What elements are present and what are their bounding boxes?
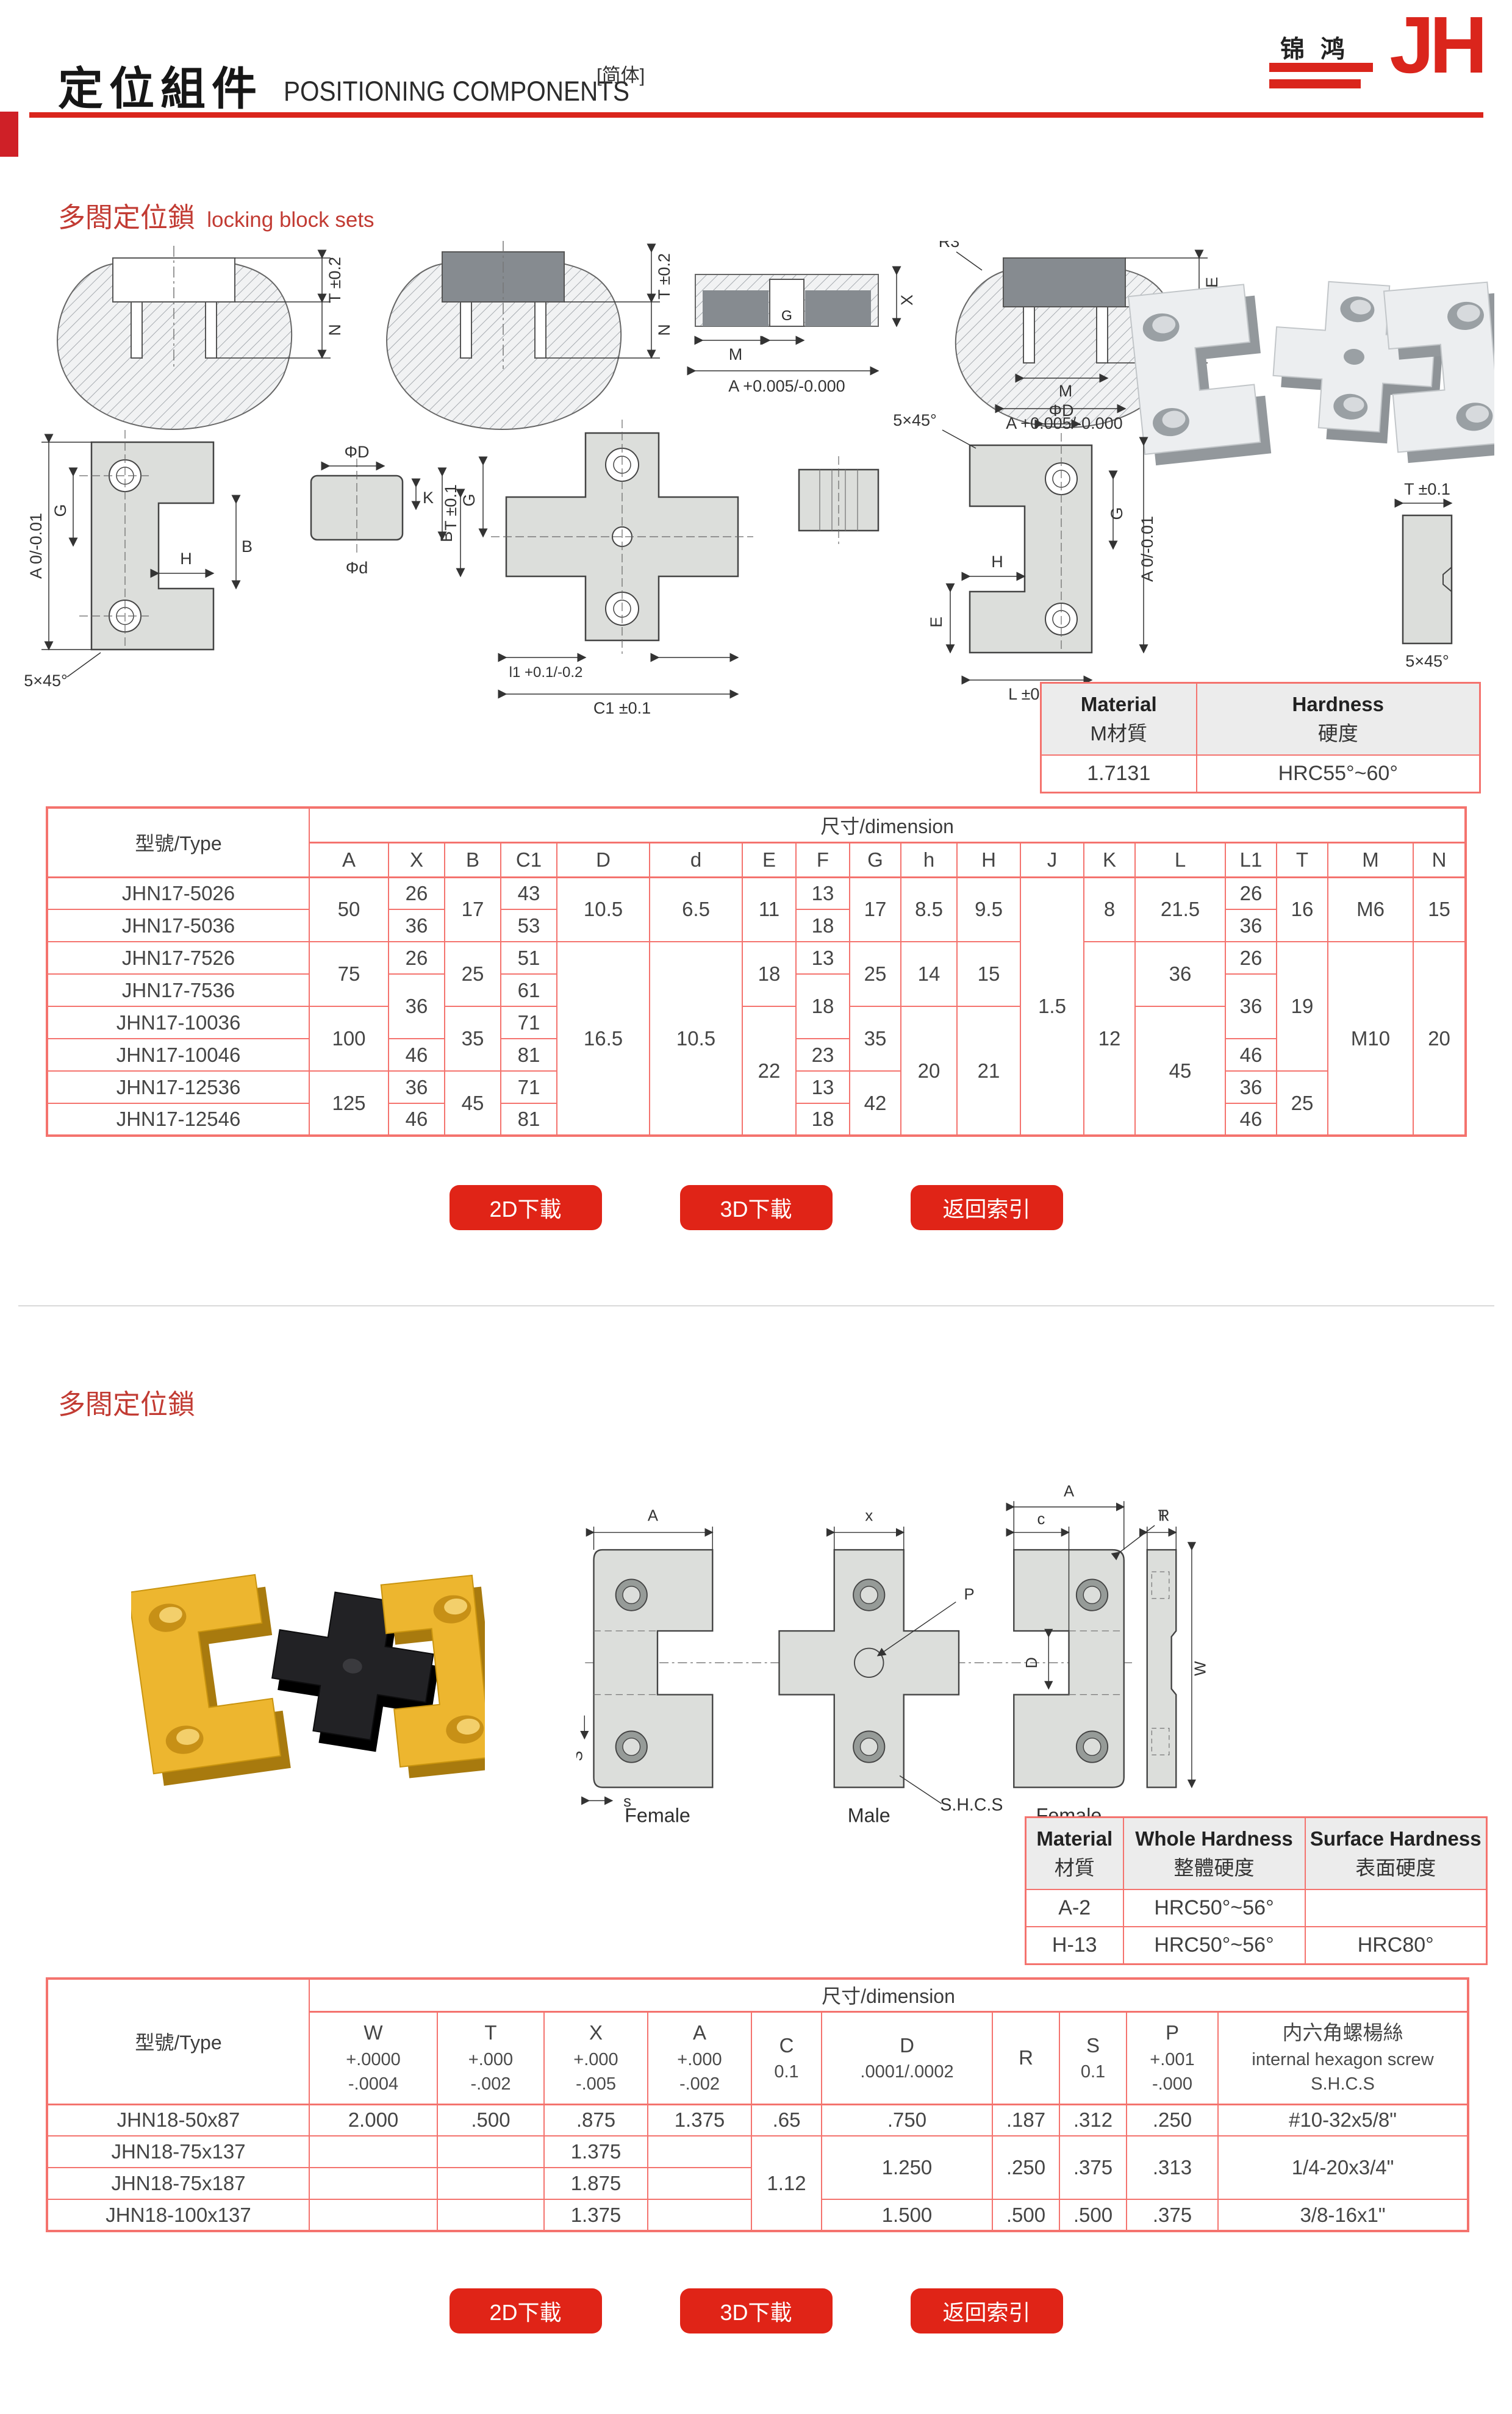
material-cell: HRC80°	[1305, 1927, 1487, 1965]
download-2d-button[interactable]: 2D下載	[450, 2288, 602, 2333]
column-header: 内六角螺楊絲internal hexagon screwS.H.C.S	[1218, 2011, 1468, 2104]
dimension-cell: 125	[309, 1071, 389, 1136]
dimension-cell: 36	[1225, 1071, 1277, 1103]
dim-label-phiD: ΦD	[1048, 401, 1073, 420]
dimension-cell: 18	[796, 1103, 850, 1136]
dim-label-B: B	[242, 537, 253, 556]
dimension-cell	[309, 2168, 437, 2199]
dimension-cell: 13	[796, 1071, 850, 1103]
dimension-cell: .250	[992, 2136, 1059, 2199]
section1-title-en: locking block sets	[207, 208, 374, 232]
logo-jh-mark: JH	[1389, 0, 1483, 91]
type-cell: JHN18-50x87	[47, 2104, 309, 2136]
dimension-cell: 9.5	[957, 877, 1020, 942]
dim-label-G: G	[51, 504, 70, 517]
material-column-header: Material材質	[1026, 1818, 1123, 1889]
catalog-page: 定位組件 POSITIONING COMPONENTS [简体] 锦鸿 JH 多…	[0, 0, 1512, 2414]
section2-title-zh: 多閤定位鎖	[58, 1389, 195, 1420]
table-row: JHN18-75x1371.3751.121.250.250.375.3131/…	[47, 2136, 1468, 2168]
dimension-cell: 36	[389, 909, 445, 942]
type-column-header: 型號/Type	[47, 808, 309, 877]
dimension-cell: 71	[501, 1006, 557, 1039]
dim-label-T: T ±0.2	[655, 253, 673, 299]
dimension-cell: 17	[445, 877, 501, 942]
dimension-cell: .500	[1059, 2199, 1127, 2231]
dimension-cell: 26	[389, 942, 445, 974]
table-row: JHN17-50265026174310.56.51113178.59.51.5…	[47, 877, 1466, 909]
dimension-table: 型號/Type尺寸/dimensionW+.0000-.0004T+.000-.…	[46, 1977, 1469, 2232]
dimension-cell	[309, 2136, 437, 2168]
section-divider	[18, 1305, 1494, 1306]
section2-technical-drawing: A S s x P S.H.C.S	[576, 1479, 1214, 1830]
column-header: L1	[1225, 842, 1277, 877]
dimension-cell: 25	[445, 942, 501, 1006]
dimension-span-header: 尺寸/dimension	[309, 1979, 1468, 2011]
material-cell: H-13	[1026, 1927, 1123, 1965]
red-corner-block	[0, 112, 18, 157]
dimension-cell	[309, 2199, 437, 2231]
dimension-cell: 1.5	[1020, 877, 1084, 1136]
dimension-cell: 25	[1277, 1071, 1328, 1136]
dim-label-N: N	[326, 324, 344, 336]
dimension-cell: 15	[1413, 877, 1466, 942]
plan-view-right-block: ΦD G A 0/-0.01 H E L ±0.1 5×45°	[893, 401, 1156, 703]
dimension-cell: 46	[389, 1103, 445, 1136]
dimension-cell: 51	[501, 942, 557, 974]
dimension-cell: 1.500	[822, 2199, 992, 2231]
dimension-cell: 1.375	[544, 2199, 648, 2231]
dim-label-M: M	[1059, 382, 1073, 400]
dim-label-S: S	[576, 1751, 586, 1761]
material-table: Material材質Whole Hardness整體硬度Surface Hard…	[1025, 1816, 1488, 1965]
dim-label-W: W	[1192, 1661, 1209, 1676]
back-to-index-button[interactable]: 返回索引	[911, 2288, 1063, 2333]
logo-stripe	[1269, 63, 1373, 72]
dim-label-A01: A 0/-0.01	[27, 513, 45, 579]
dim-label-x: x	[865, 1508, 873, 1525]
dimension-cell: 42	[850, 1071, 901, 1136]
dimension-cell: 1.375	[544, 2136, 648, 2168]
dimension-cell: 3/8-16x1"	[1218, 2199, 1468, 2231]
table-row: A-2HRC50°~56°	[1026, 1889, 1487, 1927]
dimension-cell: .375	[1059, 2136, 1127, 2199]
dimension-cell	[437, 2136, 544, 2168]
side-section-small: T ±0.1 5×45°	[1403, 480, 1452, 670]
material-cell: HRC50°~56°	[1123, 1889, 1305, 1927]
dimension-cell: .65	[751, 2104, 822, 2136]
dimension-cell: 2.000	[309, 2104, 437, 2136]
material-column-header: Whole Hardness整體硬度	[1123, 1818, 1305, 1889]
dim-label-H: H	[180, 550, 192, 568]
dim-label-phiD: ΦD	[344, 443, 369, 461]
dim-label-G: G	[781, 307, 792, 323]
dimension-cell: 17	[850, 877, 901, 942]
section2-title: 多閤定位鎖	[58, 1382, 195, 1422]
dimension-cell: #10-32x5/8"	[1218, 2104, 1468, 2136]
dimension-cell: 22	[742, 1006, 796, 1136]
male-cross: x P S.H.C.S	[779, 1508, 1003, 1815]
dim-label-P: P	[964, 1586, 975, 1603]
dim-label-R3: R3	[939, 241, 960, 251]
plan-view-cross-block: G B l1 +0.1/-0.2 C1 ±0.1	[437, 420, 753, 717]
logo-chinese-text: 锦鸿	[1280, 29, 1361, 65]
dim-label-C1: C1 ±0.1	[593, 699, 651, 717]
dimension-cell: 14	[901, 942, 957, 1006]
type-cell: JHN17-12546	[47, 1103, 309, 1136]
material-table: MaterialM材質Hardness硬度1.7131HRC55°~60°	[1040, 682, 1481, 793]
dimension-cell: 35	[445, 1006, 501, 1071]
dimension-cell: 8.5	[901, 877, 957, 942]
dimension-cell: 13	[796, 942, 850, 974]
dimension-cell	[648, 2199, 751, 2231]
product-photo-locking-blocks	[131, 1549, 485, 1805]
female-plate-left: A S s	[576, 1508, 712, 1810]
dimension-cell: .750	[822, 2104, 992, 2136]
material-cell: HRC50°~56°	[1123, 1927, 1305, 1965]
dimension-cell: .312	[1059, 2104, 1127, 2136]
column-header: H	[957, 842, 1020, 877]
dimension-cell: 10.5	[557, 877, 650, 942]
dim-label-c: c	[1037, 1511, 1045, 1528]
material-cell: HRC55°~60°	[1197, 755, 1480, 793]
female-plate-right: A c R D	[1014, 1483, 1169, 1788]
dimension-cell: 36	[1225, 909, 1277, 942]
table-row: 1.7131HRC55°~60°	[1041, 755, 1480, 793]
dimension-cell: 36	[389, 1071, 445, 1103]
dimension-cell: 20	[1413, 942, 1466, 1136]
dim-label-chamfer: 5×45°	[1405, 652, 1449, 670]
column-header: R	[992, 2011, 1059, 2104]
section1-buttons: 2D下載 3D下載 返回索引	[0, 1185, 1512, 1230]
dimension-table-2: 型號/Type尺寸/dimensionW+.0000-.0004T+.000-.…	[46, 1977, 1469, 2232]
dimension-cell: .875	[544, 2104, 648, 2136]
section1-title: 多閤定位鎖 locking block sets	[58, 195, 374, 235]
dim-label-B: B	[437, 531, 456, 542]
dim-label-H: H	[991, 553, 1003, 571]
dim-label-T01: T ±0.1	[1404, 480, 1450, 498]
page-title: 定位組件	[58, 52, 263, 118]
plan-view-threaded-part	[799, 456, 878, 544]
dimension-cell: 81	[501, 1039, 557, 1071]
section-view-3: X M G A +0.005/-0.000	[695, 274, 916, 395]
dimension-cell: 100	[309, 1006, 389, 1071]
section1-title-zh: 多閤定位鎖	[58, 202, 195, 233]
dimension-cell: .500	[437, 2104, 544, 2136]
caption-male: Male	[848, 1805, 890, 1827]
dimension-cell: 25	[850, 942, 901, 1006]
column-header: X+.000-.005	[544, 2011, 648, 2104]
dimension-cell	[648, 2136, 751, 2168]
dimension-cell: 18	[796, 974, 850, 1039]
table-row: JHN18-50x872.000.500.8751.375.65.750.187…	[47, 2104, 1468, 2136]
material-table-2: Material材質Whole Hardness整體硬度Surface Hard…	[1025, 1816, 1488, 1965]
dimension-table: 型號/Type尺寸/dimensionAXBC1DdEFGhHJKLL1TMNJ…	[46, 806, 1467, 1137]
dimension-cell	[648, 2168, 751, 2199]
type-cell: JHN18-100x137	[47, 2199, 309, 2231]
table-row: H-13HRC50°~56°HRC80°	[1026, 1927, 1487, 1965]
section-view-2: T ±0.2 N	[387, 241, 673, 429]
dimension-cell: 16.5	[557, 942, 650, 1136]
dimension-cell: 45	[445, 1071, 501, 1136]
type-cell: JHN17-5026	[47, 877, 309, 909]
dimension-cell: 35	[850, 1006, 901, 1071]
dim-label-chamfer: 5×45°	[24, 672, 68, 690]
dimension-cell: 13	[796, 877, 850, 909]
dim-label-E: E	[1203, 277, 1221, 288]
plan-view-pin: ΦD Φd K T ±0.1	[311, 443, 460, 577]
type-cell: JHN17-10036	[47, 1006, 309, 1039]
column-header: L	[1135, 842, 1225, 877]
column-header: T	[1277, 842, 1328, 877]
dim-label-l1: l1 +0.1/-0.2	[509, 664, 583, 681]
column-header: N	[1413, 842, 1466, 877]
dim-label-T: T ±0.2	[326, 257, 344, 303]
dimension-cell: 43	[501, 877, 557, 909]
dimension-cell: 53	[501, 909, 557, 942]
download-2d-button[interactable]: 2D下載	[450, 1185, 602, 1230]
section2-buttons: 2D下載 3D下載 返回索引	[0, 2288, 1512, 2333]
dimension-cell: 16	[1277, 877, 1328, 942]
material-column-header: Surface Hardness表面硬度	[1305, 1818, 1487, 1889]
dimension-span-header: 尺寸/dimension	[309, 808, 1466, 842]
dimension-cell: 1/4-20x3/4"	[1218, 2136, 1468, 2199]
dimension-cell: 81	[501, 1103, 557, 1136]
section1-technical-drawing: T ±0.2 N T ±0.2 N X M	[18, 241, 1494, 717]
dim-label-chamfer: 5×45°	[893, 411, 937, 429]
material-table-1: MaterialM材質Hardness硬度1.7131HRC55°~60°	[1040, 682, 1481, 793]
column-header: X	[389, 842, 445, 877]
dimension-cell: 18	[796, 909, 850, 942]
dimension-cell: 26	[1225, 942, 1277, 974]
dimension-cell: 1.375	[648, 2104, 751, 2136]
dim-label-G: G	[460, 493, 478, 506]
column-header: F	[796, 842, 850, 877]
dimension-cell: 11	[742, 877, 796, 942]
type-cell: JHN17-7536	[47, 974, 309, 1006]
column-header: P+.001-.000	[1127, 2011, 1218, 2104]
material-cell	[1305, 1889, 1487, 1927]
dimension-cell: 46	[389, 1039, 445, 1071]
dimension-cell: 26	[1225, 877, 1277, 909]
dimension-cell: 15	[957, 942, 1020, 1006]
download-3d-button[interactable]: 3D下載	[680, 1185, 833, 1230]
caption-female-left: Female	[625, 1805, 690, 1827]
dimension-cell: 1.875	[544, 2168, 648, 2199]
dimension-cell: .250	[1127, 2104, 1218, 2136]
column-header: J	[1020, 842, 1084, 877]
language-tag[interactable]: [简体]	[597, 60, 645, 87]
dimension-cell: 19	[1277, 942, 1328, 1071]
column-header: B	[445, 842, 501, 877]
dim-label-T01: T ±0.1	[442, 484, 460, 531]
product-photo-steel-blocks	[1128, 278, 1494, 467]
type-cell: JHN17-12536	[47, 1071, 309, 1103]
dimension-cell: 21	[957, 1006, 1020, 1136]
dimension-table-1: 型號/Type尺寸/dimensionAXBC1DdEFGhHJKLL1TMNJ…	[46, 806, 1467, 1137]
dimension-cell: 71	[501, 1071, 557, 1103]
dimension-cell: 12	[1084, 942, 1135, 1136]
column-header: W+.0000-.0004	[309, 2011, 437, 2104]
dimension-cell: 50	[309, 877, 389, 942]
column-header: G	[850, 842, 901, 877]
dim-label-D: D	[1023, 1657, 1041, 1669]
dimension-cell: 1.12	[751, 2136, 822, 2231]
column-header: d	[650, 842, 742, 877]
dimension-cell: M6	[1328, 877, 1413, 942]
column-header: C1	[501, 842, 557, 877]
dimension-cell: 6.5	[650, 877, 742, 942]
dimension-cell: 45	[1135, 1006, 1225, 1136]
section-view-1: T ±0.2 N	[57, 246, 344, 429]
column-header: M	[1328, 842, 1413, 877]
dimension-cell: .313	[1127, 2136, 1218, 2199]
dim-label-A-tol: A +0.005/-0.000	[728, 377, 845, 395]
column-header: A+.000-.002	[648, 2011, 751, 2104]
dimension-cell: .500	[992, 2199, 1059, 2231]
dim-label-M: M	[729, 345, 743, 364]
material-column-header: Hardness硬度	[1197, 683, 1480, 755]
page-subtitle: POSITIONING COMPONENTS	[284, 76, 629, 107]
column-header: D.0001/.0002	[822, 2011, 992, 2104]
dimension-cell: .375	[1127, 2199, 1218, 2231]
column-header: K	[1084, 842, 1135, 877]
table-row: JHN17-75267526255116.510.518132514151236…	[47, 942, 1466, 974]
dim-label-phid: Φd	[346, 559, 368, 577]
material-column-header: MaterialM材質	[1041, 683, 1197, 755]
column-header: C0.1	[751, 2011, 822, 2104]
side-view-plate: T W	[1147, 1508, 1209, 1788]
dim-label-G: G	[1108, 507, 1126, 520]
dimension-cell: 75	[309, 942, 389, 1006]
column-header: D	[557, 842, 650, 877]
dimension-cell: 36	[1135, 942, 1225, 1006]
label-shcs: S.H.C.S	[940, 1796, 1003, 1815]
header-rule	[29, 112, 1483, 118]
dimension-cell: .187	[992, 2104, 1059, 2136]
download-3d-button[interactable]: 3D下載	[680, 2288, 833, 2333]
material-cell: 1.7131	[1041, 755, 1197, 793]
dimension-cell: 61	[501, 974, 557, 1006]
type-cell: JHN18-75x187	[47, 2168, 309, 2199]
dim-label-A: A	[1064, 1483, 1075, 1500]
back-to-index-button[interactable]: 返回索引	[911, 1185, 1063, 1230]
dim-label-T: T	[1158, 1508, 1168, 1525]
dimension-cell: 46	[1225, 1039, 1277, 1071]
dimension-cell: 21.5	[1135, 877, 1225, 942]
dim-label-K: K	[423, 489, 434, 507]
column-header: E	[742, 842, 796, 877]
plan-view-left-block: A 0/-0.01 G H B 5×45°	[24, 430, 253, 690]
dimension-cell: 46	[1225, 1103, 1277, 1136]
company-logo: 锦鸿 JH	[1269, 16, 1483, 107]
dimension-cell: 1.250	[822, 2136, 992, 2199]
dimension-cell: 20	[901, 1006, 957, 1136]
logo-stripe	[1269, 79, 1361, 88]
type-cell: JHN18-75x137	[47, 2136, 309, 2168]
type-cell: JHN17-10046	[47, 1039, 309, 1071]
dimension-cell: 18	[742, 942, 796, 1006]
dim-label-X: X	[898, 295, 916, 306]
type-cell: JHN17-7526	[47, 942, 309, 974]
dim-label-N: N	[655, 324, 673, 336]
dimension-cell	[437, 2168, 544, 2199]
material-cell: A-2	[1026, 1889, 1123, 1927]
dim-label-A01: A 0/-0.01	[1138, 516, 1156, 582]
dim-label-E: E	[927, 617, 945, 628]
dimension-cell: 8	[1084, 877, 1135, 942]
column-header: S0.1	[1059, 2011, 1127, 2104]
dimension-cell: 23	[796, 1039, 850, 1071]
dimension-cell: 36	[389, 974, 445, 1039]
type-cell: JHN17-5036	[47, 909, 309, 942]
dimension-cell: 36	[1225, 974, 1277, 1039]
dimension-cell: M10	[1328, 942, 1413, 1136]
column-header: h	[901, 842, 957, 877]
column-header: A	[309, 842, 389, 877]
dimension-cell: 26	[389, 877, 445, 909]
type-column-header: 型號/Type	[47, 1979, 309, 2104]
dimension-cell: 10.5	[650, 942, 742, 1136]
dim-label-A: A	[648, 1508, 659, 1525]
dimension-cell	[437, 2199, 544, 2231]
column-header: T+.000-.002	[437, 2011, 544, 2104]
